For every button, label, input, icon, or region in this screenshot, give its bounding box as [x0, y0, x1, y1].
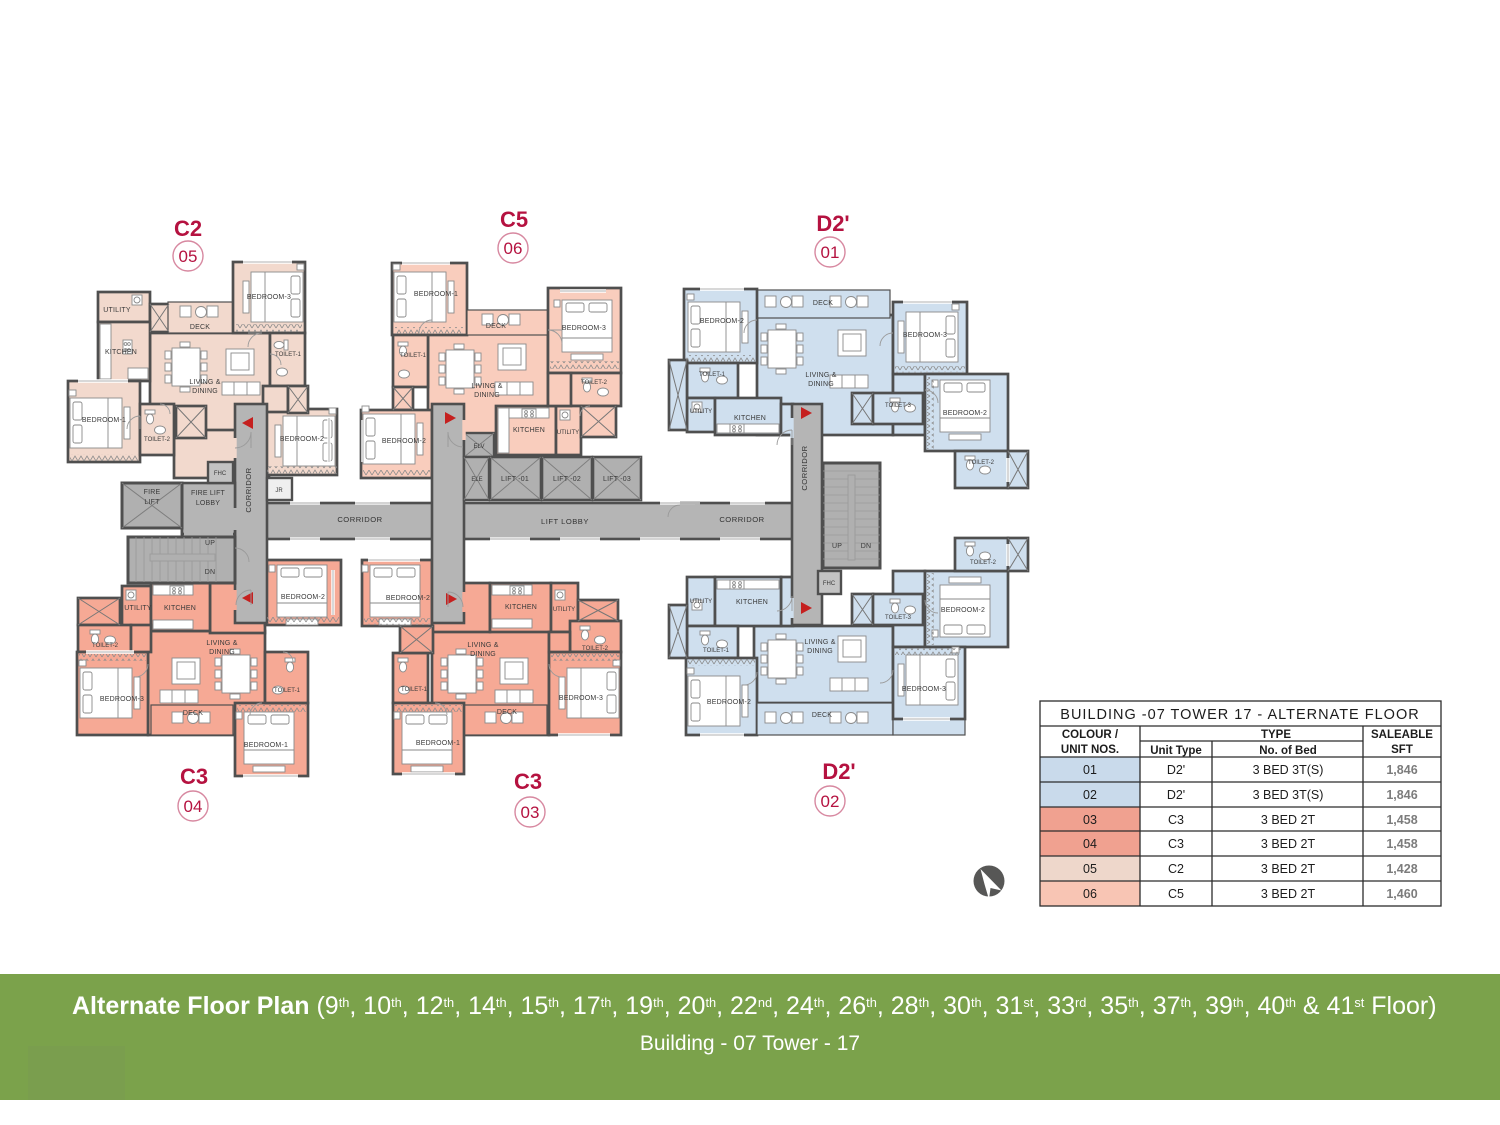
svg-text:1,458: 1,458 — [1386, 837, 1417, 851]
svg-text:ELV: ELV — [474, 444, 485, 450]
svg-text:C2: C2 — [174, 216, 202, 241]
svg-text:03: 03 — [1083, 813, 1097, 827]
svg-text:TOILET-1: TOILET-1 — [703, 648, 730, 654]
svg-text:TOILET-1: TOILET-1 — [274, 688, 301, 694]
svg-text:DECK: DECK — [497, 709, 517, 716]
svg-text:3 BED 3T(S): 3 BED 3T(S) — [1253, 763, 1324, 777]
svg-text:BUILDING -07 TOWER 17 - AL: BUILDING -07 TOWER 17 - ALTERNATE FLOOR — [1060, 707, 1419, 723]
svg-text:KITCHEN: KITCHEN — [505, 604, 537, 611]
svg-text:KITCHEN: KITCHEN — [734, 415, 766, 422]
svg-text:DECK: DECK — [813, 300, 833, 307]
svg-text:04: 04 — [1083, 837, 1097, 851]
svg-text:BEDROOM-1: BEDROOM-1 — [416, 740, 460, 747]
svg-text:TYPE: TYPE — [1261, 729, 1291, 741]
svg-text:BEDROOM-2: BEDROOM-2 — [700, 318, 744, 325]
svg-text:LIFT -01: LIFT -01 — [501, 476, 529, 483]
svg-text:BEDROOM-3: BEDROOM-3 — [562, 325, 606, 332]
svg-text:CORRIDOR: CORRIDOR — [337, 515, 382, 524]
svg-text:KITCHEN: KITCHEN — [164, 605, 196, 612]
svg-text:SALEABLE: SALEABLE — [1371, 729, 1433, 741]
svg-text:JR: JR — [275, 488, 283, 494]
svg-text:TOILET-2: TOILET-2 — [92, 643, 119, 649]
svg-text:LIVING &: LIVING & — [804, 639, 835, 646]
svg-text:BEDROOM-2: BEDROOM-2 — [281, 594, 325, 601]
svg-text:UTILITY: UTILITY — [124, 605, 152, 612]
svg-text:LIFT LOBBY: LIFT LOBBY — [541, 517, 589, 526]
svg-text:LIVING &: LIVING & — [189, 379, 220, 386]
svg-text:DINING: DINING — [470, 651, 496, 658]
svg-text:C5: C5 — [1168, 887, 1184, 901]
svg-text:KITCHEN: KITCHEN — [105, 349, 137, 356]
svg-text:TOILET-3: TOILET-3 — [885, 615, 912, 621]
svg-text:06: 06 — [1083, 887, 1097, 901]
svg-text:TOILET-3: TOILET-3 — [885, 403, 912, 409]
svg-text:UTILITY: UTILITY — [557, 430, 579, 436]
svg-text:CORRIDOR: CORRIDOR — [244, 467, 253, 512]
svg-text:LIVING &: LIVING & — [206, 640, 237, 647]
svg-text:UTILITY: UTILITY — [103, 307, 131, 314]
svg-text:1,846: 1,846 — [1386, 788, 1417, 802]
svg-text:C3: C3 — [1168, 837, 1184, 851]
svg-text:BEDROOM-3: BEDROOM-3 — [100, 696, 144, 703]
svg-text:UTILITY: UTILITY — [690, 599, 712, 605]
svg-text:3 BED 2T: 3 BED 2T — [1261, 813, 1316, 827]
svg-text:BEDROOM-3: BEDROOM-3 — [903, 332, 947, 339]
svg-text:KITCHEN: KITCHEN — [513, 427, 545, 434]
svg-text:FHC: FHC — [214, 471, 227, 477]
svg-text:3 BED 2T: 3 BED 2T — [1261, 887, 1316, 901]
svg-text:BEDROOM-1: BEDROOM-1 — [82, 417, 126, 424]
svg-text:LIVING &: LIVING & — [805, 372, 836, 379]
svg-text:CORRIDOR: CORRIDOR — [800, 445, 809, 490]
svg-text:FHC: FHC — [823, 581, 836, 587]
svg-text:DINING: DINING — [209, 649, 235, 656]
svg-text:DN: DN — [205, 569, 216, 576]
svg-text:TOILET-2: TOILET-2 — [968, 460, 995, 466]
svg-text:FIRE LIFT: FIRE LIFT — [191, 490, 226, 497]
svg-text:KITCHEN: KITCHEN — [736, 599, 768, 606]
svg-text:LIFT -03: LIFT -03 — [603, 476, 631, 483]
svg-text:BEDROOM-3: BEDROOM-3 — [247, 294, 291, 301]
svg-text:BEDROOM-1: BEDROOM-1 — [244, 742, 288, 749]
svg-text:TOILET-1: TOILET-1 — [275, 352, 302, 358]
svg-text:DECK: DECK — [812, 712, 832, 719]
svg-text:TOILET-1: TOILET-1 — [401, 687, 428, 693]
svg-text:TOILET-2: TOILET-2 — [582, 646, 609, 652]
svg-text:3 BED 2T: 3 BED 2T — [1261, 862, 1316, 876]
svg-text:DINING: DINING — [474, 392, 500, 399]
svg-text:1,460: 1,460 — [1386, 887, 1417, 901]
svg-text:DN: DN — [861, 543, 872, 550]
svg-text:LIFT: LIFT — [144, 499, 160, 506]
svg-text:BEDROOM-2: BEDROOM-2 — [386, 595, 430, 602]
svg-text:C3: C3 — [1168, 813, 1184, 827]
svg-text:UTILITY: UTILITY — [553, 607, 575, 613]
svg-text:DINING: DINING — [192, 388, 218, 395]
svg-text:01: 01 — [1083, 763, 1097, 777]
svg-text:TOILET-2: TOILET-2 — [144, 437, 171, 443]
svg-text:BEDROOM-1: BEDROOM-1 — [414, 291, 458, 298]
svg-text:1,458: 1,458 — [1386, 813, 1417, 827]
svg-text:D2': D2' — [816, 211, 849, 236]
svg-text:BEDROOM-2: BEDROOM-2 — [280, 436, 324, 443]
svg-text:UTILITY: UTILITY — [690, 409, 712, 415]
svg-text:LIVING &: LIVING & — [471, 383, 502, 390]
svg-text:3 BED 2T: 3 BED 2T — [1261, 837, 1316, 851]
svg-text:DECK: DECK — [183, 710, 203, 717]
svg-text:BEDROOM-3: BEDROOM-3 — [902, 686, 946, 693]
svg-text:1,846: 1,846 — [1386, 763, 1417, 777]
svg-text:TOILET-1: TOILET-1 — [400, 353, 427, 359]
svg-text:DECK: DECK — [190, 324, 210, 331]
svg-text:UNIT NOS.: UNIT NOS. — [1061, 744, 1119, 756]
svg-text:BEDROOM-2: BEDROOM-2 — [707, 699, 751, 706]
svg-text:UP: UP — [832, 543, 842, 550]
svg-text:05: 05 — [1083, 862, 1097, 876]
svg-text:UP: UP — [205, 540, 215, 547]
svg-text:3 BED 3T(S): 3 BED 3T(S) — [1253, 788, 1324, 802]
svg-text:04: 04 — [184, 797, 203, 816]
svg-text:D2': D2' — [1167, 763, 1185, 777]
svg-text:BEDROOM-3: BEDROOM-3 — [559, 695, 603, 702]
svg-text:DECK: DECK — [486, 323, 506, 330]
svg-text:LIFT -02: LIFT -02 — [553, 476, 581, 483]
svg-text:C2: C2 — [1168, 862, 1184, 876]
svg-text:D2': D2' — [1167, 788, 1185, 802]
svg-text:C3: C3 — [514, 769, 542, 794]
svg-text:DINING: DINING — [808, 381, 834, 388]
svg-text:C3: C3 — [180, 764, 208, 789]
svg-text:FIRE: FIRE — [144, 489, 161, 496]
svg-text:TOILET-2: TOILET-2 — [970, 560, 997, 566]
svg-text:TOILET-1: TOILET-1 — [699, 372, 726, 378]
svg-text:06: 06 — [504, 239, 523, 258]
svg-text:LIVING &: LIVING & — [467, 642, 498, 649]
svg-text:CORRIDOR: CORRIDOR — [719, 515, 764, 524]
svg-text:COLOUR /: COLOUR / — [1062, 729, 1119, 741]
svg-text:D2': D2' — [822, 759, 855, 784]
svg-text:Alternate Floor Plan (9th, 10t: Alternate Floor Plan (9th, 10th, 12th, 1… — [72, 992, 1437, 1020]
svg-text:BEDROOM-2: BEDROOM-2 — [382, 438, 426, 445]
svg-text:02: 02 — [821, 792, 840, 811]
svg-text:Building - 07 Tower - 17: Building - 07 Tower - 17 — [640, 1032, 860, 1055]
svg-text:C5: C5 — [500, 207, 528, 232]
svg-text:BEDROOM-2: BEDROOM-2 — [943, 410, 987, 417]
svg-text:1,428: 1,428 — [1386, 862, 1417, 876]
svg-text:02: 02 — [1083, 788, 1097, 802]
svg-text:BEDROOM-2: BEDROOM-2 — [941, 607, 985, 614]
svg-text:03: 03 — [521, 803, 540, 822]
svg-text:LOBBY: LOBBY — [196, 500, 220, 507]
svg-text:Unit Type: Unit Type — [1150, 745, 1202, 757]
svg-text:DINING: DINING — [807, 648, 833, 655]
svg-text:No. of Bed: No. of Bed — [1259, 745, 1317, 757]
svg-text:05: 05 — [179, 247, 198, 266]
svg-text:TOILET-2: TOILET-2 — [581, 380, 608, 386]
svg-text:01: 01 — [821, 243, 840, 262]
svg-text:SFT: SFT — [1391, 744, 1413, 756]
svg-text:ELE: ELE — [471, 477, 482, 483]
